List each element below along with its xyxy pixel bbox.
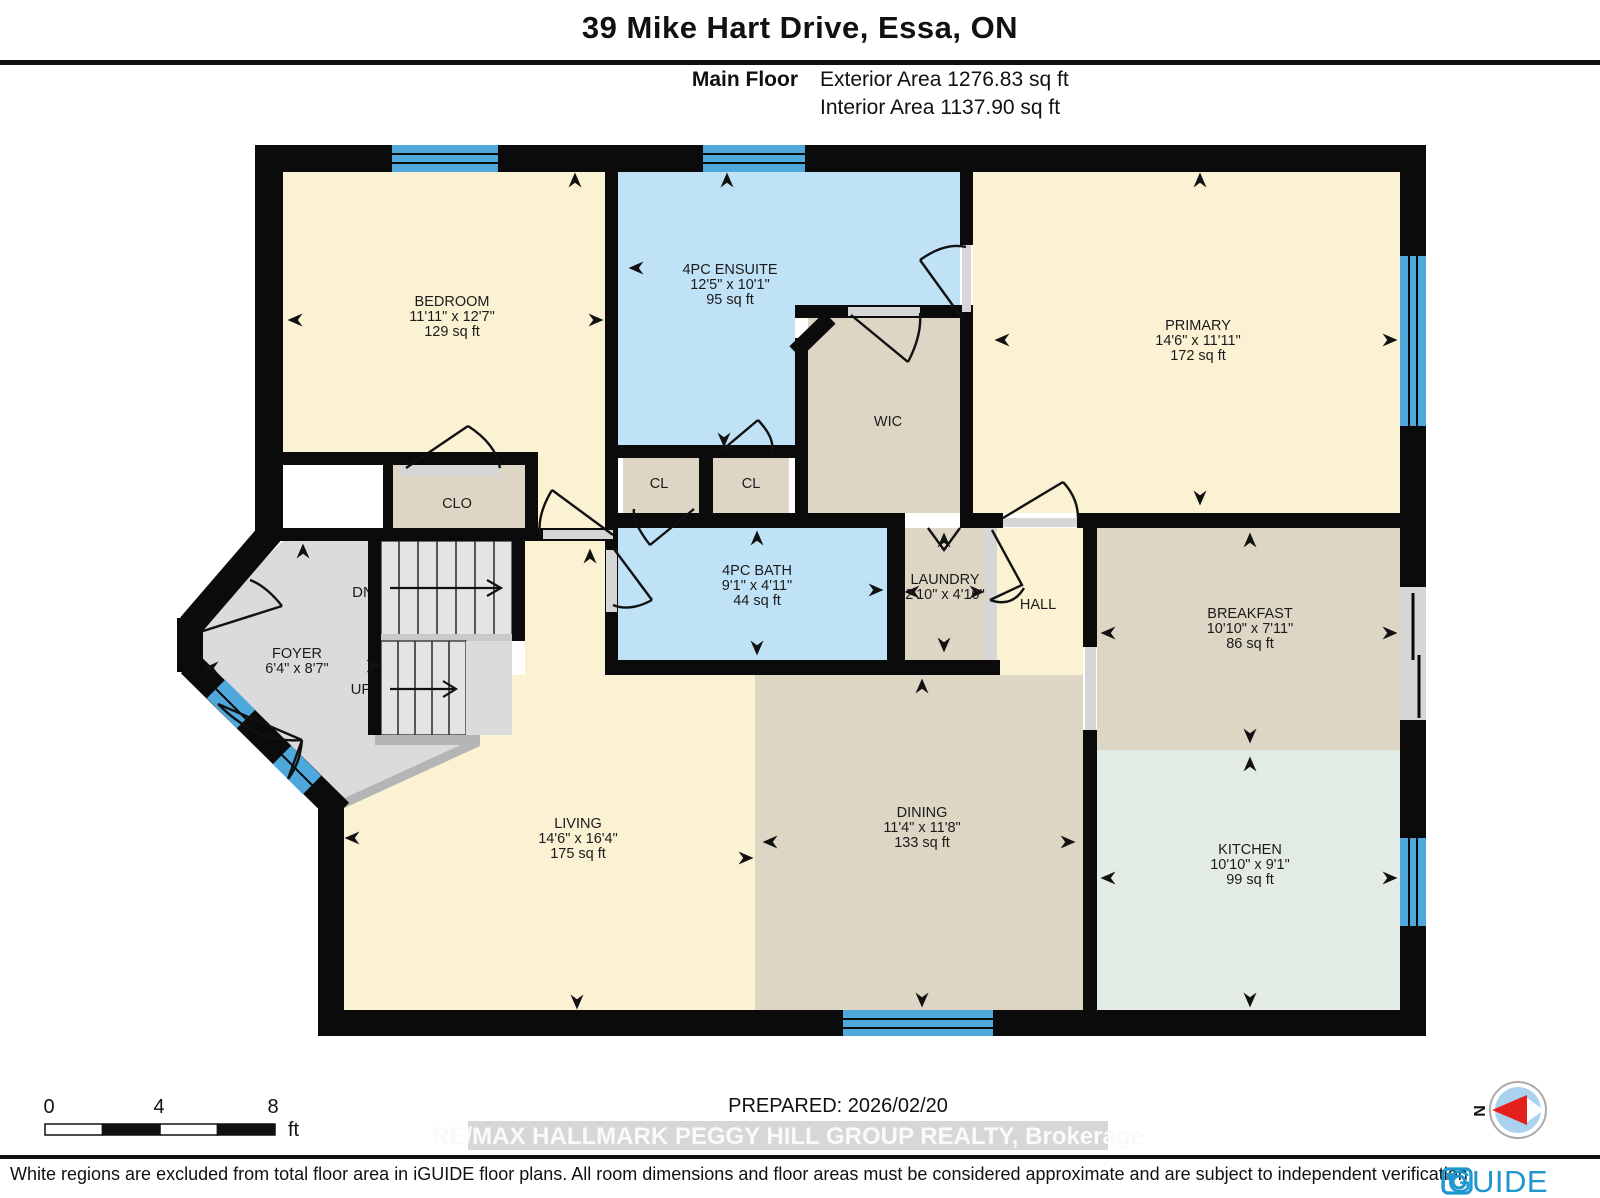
scale-tick-4: 4 [153,1096,164,1118]
room-dims: 2'10" x 4'10" [905,587,985,603]
room-dims: 14'6" x 16'4" [538,831,618,847]
room-name: DINING [897,805,948,821]
room-dims: 12'5" x 10'1" [690,277,770,293]
wic-door-slab [848,307,920,316]
bedroom-window [392,145,498,172]
room-label-clo: CLO [442,496,472,512]
ensuite-window [703,145,805,172]
room-area: 172 sq ft [1170,348,1226,364]
room-dims: 11'11" x 12'7" [409,309,494,325]
room-label-foyer: FOYER 6'4" x 8'7" [265,646,328,677]
room-name: BEDROOM [415,294,490,310]
room-name: FOYER [272,646,322,662]
room-name: 4PC BATH [722,563,792,579]
footer-divider [0,1155,1600,1159]
laundry-door-slab [985,528,997,660]
room-dims: 9'1" x 4'11" [722,578,792,594]
room-dims: 10'10" x 9'1" [1210,857,1290,873]
bath-door-slab [606,550,617,612]
excluded-white-region [283,465,383,528]
primary-window [1400,256,1426,426]
prepared-date: PREPARED: 2026/02/20 [728,1095,948,1117]
room-area: 99 sq ft [1226,872,1274,888]
room-label-wic: WIC [874,414,902,430]
scale-tick-0: 0 [43,1096,54,1118]
living-corridor-floor [525,541,605,675]
watermark-text: RE/MAX HALLMARK PEGGY HILL GROUP REALTY,… [432,1123,1144,1150]
room-name: LIVING [554,816,602,832]
room-label-hall: HALL [1020,597,1056,613]
ensuite-door-slab [962,245,971,312]
scale-unit: ft [288,1119,300,1141]
floorplan-drawing: DN UP [0,0,1600,1198]
room-label-laundry: LAUNDRY 2'10" x 4'10" [905,572,985,603]
iguide-camera-icon [1440,1164,1474,1196]
primary-door-slab [1003,518,1077,527]
room-area: 95 sq ft [706,292,754,308]
room-label-cl-right: CL [742,476,761,492]
stairs-landing [466,641,512,735]
stairs-mid-divider [381,634,512,641]
room-name: 4PC ENSUITE [682,262,777,278]
room-dims: 6'4" x 8'7" [265,661,328,677]
bedroom-door-slab [543,530,613,539]
room-area: 86 sq ft [1226,636,1274,652]
breakfast-patio-door [1400,587,1426,720]
compass: N [1472,1082,1546,1138]
dining-window [843,1010,993,1036]
room-name: KITCHEN [1218,842,1282,858]
floorplan-page: 39 Mike Hart Drive, Essa, ON Main Floor … [0,0,1600,1198]
ensuite-floor-ext [618,305,795,445]
kitchen-window [1400,838,1426,926]
room-name: LAUNDRY [910,572,979,588]
scale-bar: 0 4 8 ft [43,1096,299,1141]
room-dims: 14'6" x 11'11" [1155,333,1240,349]
ensuite-floor [618,172,960,305]
iguide-logo: iGUIDE [1440,1164,1548,1198]
footer-disclaimer: White regions are excluded from total fl… [10,1164,1473,1185]
room-dims: 10'10" x 7'11" [1207,621,1294,637]
room-name: BREAKFAST [1207,606,1293,622]
clo-door-slab [400,465,500,477]
dining-breakfast-opening [1085,647,1096,730]
room-area: 175 sq ft [550,846,606,862]
compass-north-label: N [1472,1105,1489,1117]
room-area: 133 sq ft [894,835,950,851]
room-name: PRIMARY [1165,318,1231,334]
room-label-cl-left: CL [650,476,669,492]
scale-tick-8: 8 [267,1096,278,1118]
room-area: 44 sq ft [733,593,781,609]
room-dims: 11'4" x 11'8" [883,820,960,836]
room-area: 129 sq ft [424,324,480,340]
